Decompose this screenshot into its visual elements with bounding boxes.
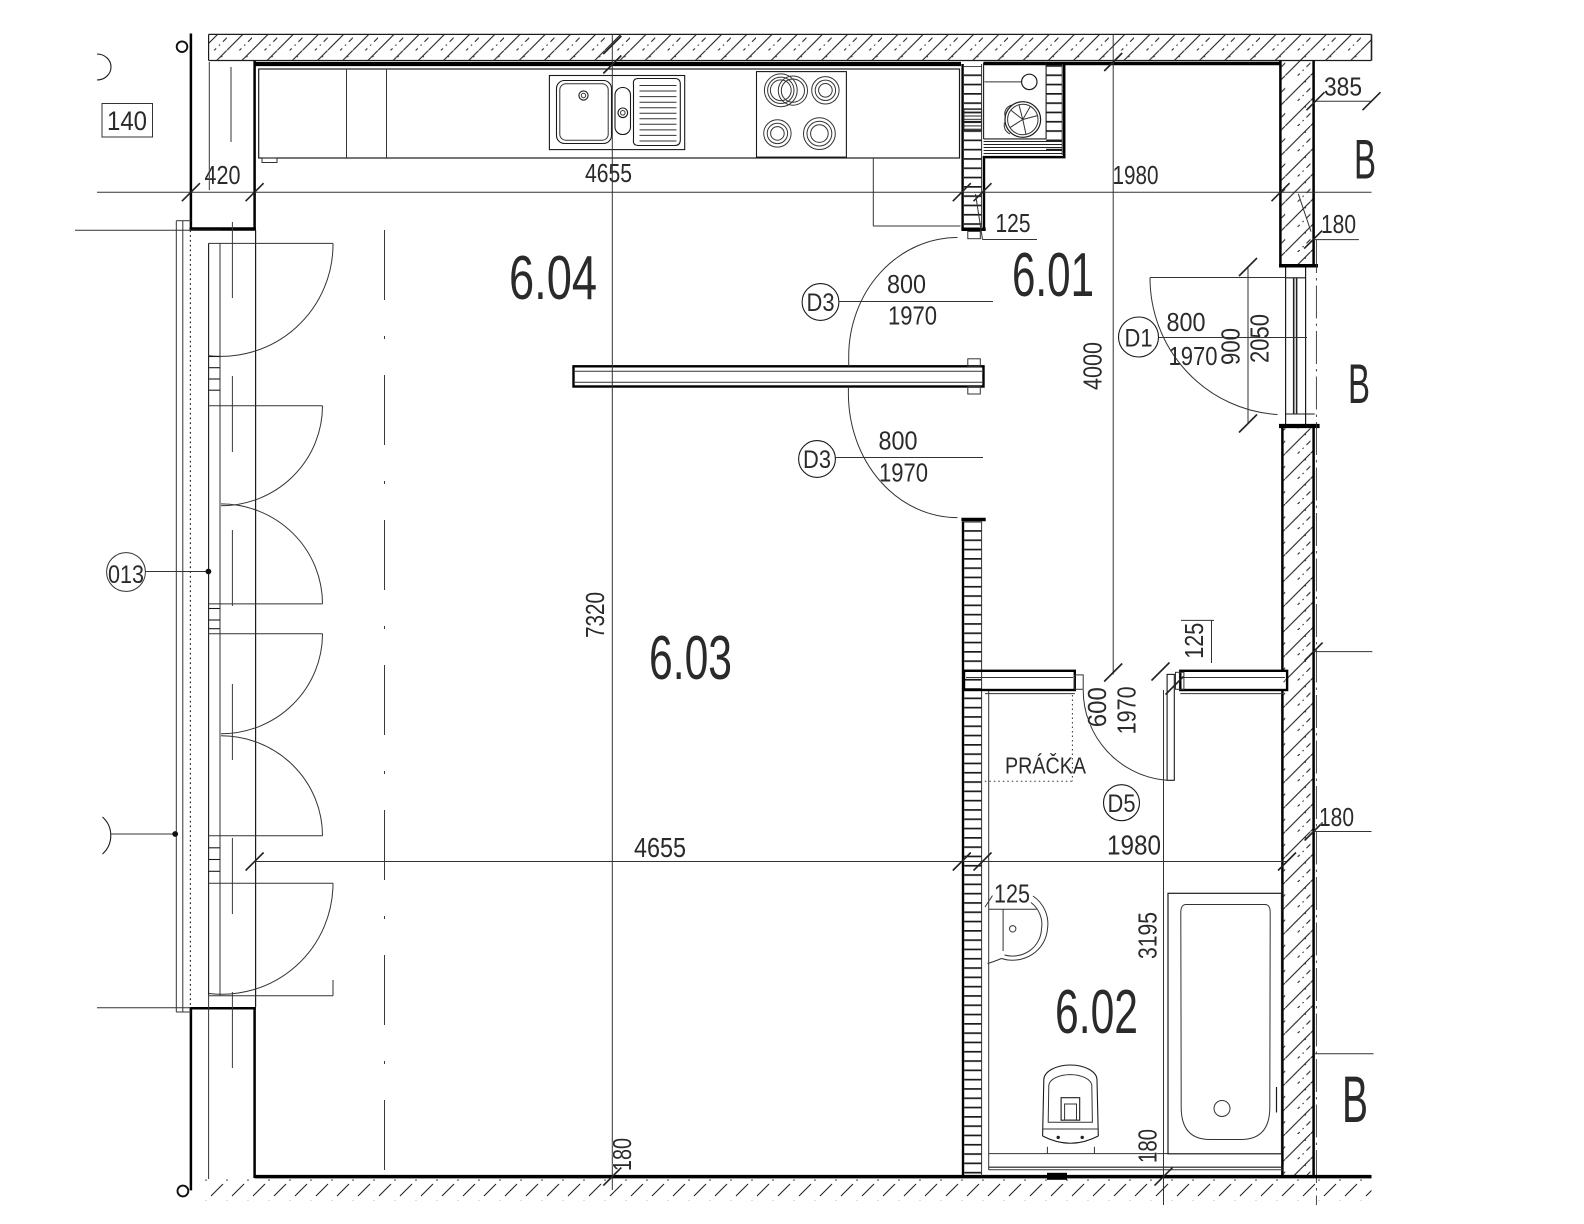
svg-text:7320: 7320 [580, 592, 610, 638]
svg-text:B: B [1342, 1062, 1368, 1136]
svg-text:4000: 4000 [1078, 342, 1108, 390]
svg-text:2050: 2050 [1245, 314, 1275, 363]
svg-text:1980: 1980 [1113, 160, 1159, 190]
svg-text:180: 180 [1133, 1129, 1163, 1163]
svg-text:385: 385 [1324, 72, 1362, 102]
svg-text:B: B [1354, 128, 1376, 191]
svg-text:4655: 4655 [585, 158, 632, 188]
svg-text:125: 125 [994, 879, 1030, 909]
svg-text:D1: D1 [1125, 325, 1153, 353]
svg-text:D5: D5 [1108, 790, 1136, 818]
svg-text:6.03: 6.03 [649, 624, 732, 693]
svg-text:800: 800 [1167, 307, 1206, 337]
svg-text:125: 125 [1179, 623, 1209, 659]
svg-text:900: 900 [1216, 328, 1246, 365]
svg-text:6.02: 6.02 [1055, 978, 1138, 1047]
svg-text:6.04: 6.04 [509, 244, 597, 313]
svg-text:180: 180 [607, 1138, 637, 1171]
svg-text:800: 800 [879, 426, 918, 456]
svg-text:1970: 1970 [1169, 341, 1218, 371]
svg-text:800: 800 [887, 269, 926, 299]
svg-text:140: 140 [107, 106, 147, 136]
svg-text:D3: D3 [803, 446, 831, 474]
svg-text:013: 013 [108, 561, 144, 589]
svg-text:125: 125 [996, 208, 1031, 238]
svg-text:3195: 3195 [1133, 912, 1163, 959]
svg-text:1980: 1980 [1107, 830, 1161, 861]
svg-text:4655: 4655 [634, 832, 686, 863]
svg-text:180: 180 [1321, 209, 1356, 239]
svg-text:1970: 1970 [888, 301, 937, 331]
svg-text:1970: 1970 [1112, 686, 1142, 734]
svg-text:D3: D3 [807, 289, 835, 317]
svg-text:PRÁČKA: PRÁČKA [1005, 752, 1087, 779]
svg-text:B: B [1348, 352, 1370, 415]
svg-text:420: 420 [205, 160, 241, 190]
svg-text:6.01: 6.01 [1012, 241, 1094, 310]
svg-text:1970: 1970 [879, 458, 928, 488]
svg-text:180: 180 [1319, 802, 1354, 832]
svg-text:600: 600 [1082, 687, 1112, 727]
